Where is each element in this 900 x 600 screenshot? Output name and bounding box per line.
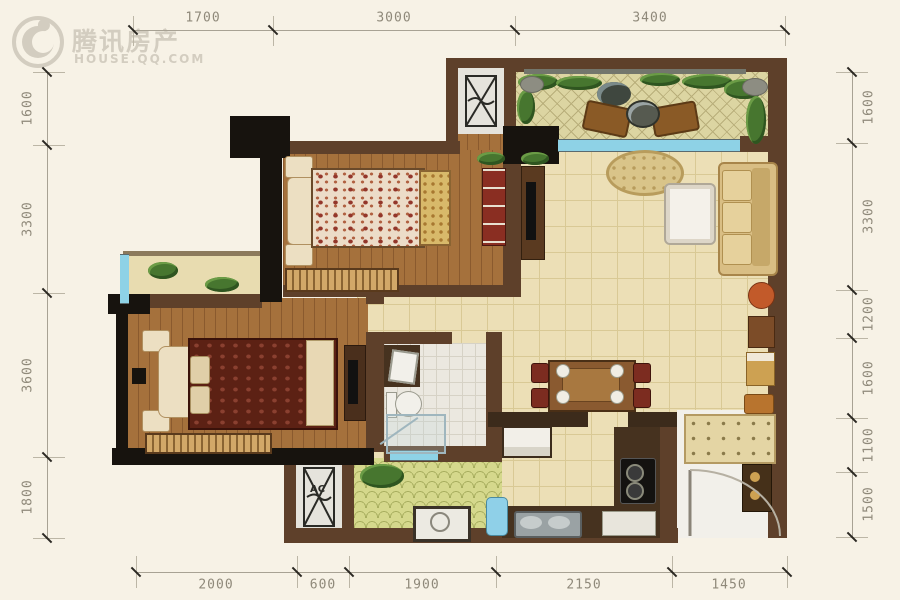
pillow (190, 386, 210, 414)
sink-basin (520, 516, 542, 529)
rock (520, 76, 544, 93)
plate (610, 364, 624, 378)
dim-right-3: 1200 (862, 296, 877, 331)
dim-bottom-3: 1900 (404, 578, 439, 593)
counter-board (602, 511, 656, 536)
master-wardrobe (145, 433, 272, 454)
wall (486, 332, 502, 462)
bed2-blanket (311, 168, 425, 248)
ac-shaft-icon (464, 74, 498, 128)
dim-top-1: 1700 (185, 11, 220, 26)
fridge (502, 426, 552, 458)
garden-table (626, 100, 660, 128)
wall (123, 251, 268, 256)
entry-doormat (684, 414, 776, 464)
dim-top-2: 3000 (376, 11, 411, 26)
tv (526, 182, 536, 240)
washer-door (430, 512, 450, 532)
rock (742, 78, 768, 96)
dim-right-1: 1600 (862, 89, 877, 124)
plate (556, 390, 570, 404)
wall-black (116, 310, 128, 452)
nightstand (285, 156, 313, 178)
nightstand (285, 244, 313, 266)
wall-black (132, 368, 146, 384)
entry-door-swing-icon (682, 464, 782, 540)
burner (626, 464, 644, 482)
dim-left-1: 1600 (21, 90, 36, 125)
sofa-cushion (722, 234, 752, 265)
dim-bottom-2: 600 (310, 578, 336, 593)
dim-bottom-4: 2150 (566, 578, 601, 593)
wall (488, 412, 588, 427)
plant (477, 152, 505, 165)
tencent-house-logo-icon (10, 14, 66, 70)
plant (521, 152, 549, 165)
sink-basin (548, 516, 570, 529)
master-bed-fold (306, 340, 334, 426)
coffee-table (664, 183, 716, 245)
wall (446, 58, 458, 152)
wall (136, 294, 262, 308)
ac-platform-label: AC (310, 484, 325, 495)
dining-chair (531, 388, 549, 408)
plant (746, 96, 766, 144)
plate (610, 390, 624, 404)
dining-chair (633, 363, 651, 383)
sofa-cushion (722, 170, 752, 201)
plant (360, 464, 404, 488)
wall-black (108, 294, 150, 314)
washbasin (388, 349, 419, 384)
wall (384, 332, 452, 344)
decor-pot (748, 282, 775, 309)
plant (517, 90, 535, 124)
sofa-back (752, 168, 770, 266)
decor-pot (744, 394, 774, 414)
dimension-rail-top (133, 30, 785, 31)
plant (556, 76, 602, 90)
wall (660, 427, 677, 538)
dim-right-4: 1600 (862, 360, 877, 395)
floor-bedroom2-notch (456, 132, 503, 152)
dimension-rail-bottom (136, 572, 787, 573)
wall (504, 66, 516, 128)
dimension-rail-left (47, 72, 48, 538)
tv (348, 360, 358, 404)
water-heater (486, 497, 508, 536)
bed2-bolster (419, 170, 451, 246)
plate (556, 364, 570, 378)
plant (640, 73, 680, 86)
decor-box (748, 316, 775, 348)
pillow (190, 356, 210, 384)
dim-bottom-1: 2000 (198, 578, 233, 593)
wall (366, 332, 384, 452)
dim-right-5: 1100 (862, 427, 877, 462)
burner (626, 482, 644, 500)
dim-right-6: 1500 (862, 486, 877, 521)
dim-left-3: 3600 (21, 357, 36, 392)
master-bed-headboard (158, 346, 190, 418)
dining-chair (633, 388, 651, 408)
floor-plan-image: 腾讯房产 HOUSE.QQ.COM 1700 3000 3400 2000 60… (0, 0, 900, 600)
plant (148, 262, 178, 279)
decor-jar (746, 352, 775, 386)
wall-black (260, 150, 282, 302)
dining-chair (531, 363, 549, 383)
wall (284, 141, 460, 154)
watermark-site: HOUSE.QQ.COM (74, 52, 205, 66)
dim-left-4: 1800 (21, 479, 36, 514)
ac-platform-icon (302, 466, 336, 528)
dim-left-2: 3300 (21, 201, 36, 236)
dim-top-3: 3400 (632, 11, 667, 26)
bedroom2-wardrobe (285, 268, 399, 292)
wall (366, 294, 384, 304)
wall (628, 412, 677, 427)
dim-bottom-5: 1450 (711, 578, 746, 593)
bedroom2-cabinet (482, 168, 506, 246)
dim-right-2: 3300 (862, 198, 877, 233)
sofa-cushion (722, 202, 752, 233)
plant (205, 277, 239, 292)
window-balcony (120, 254, 129, 304)
